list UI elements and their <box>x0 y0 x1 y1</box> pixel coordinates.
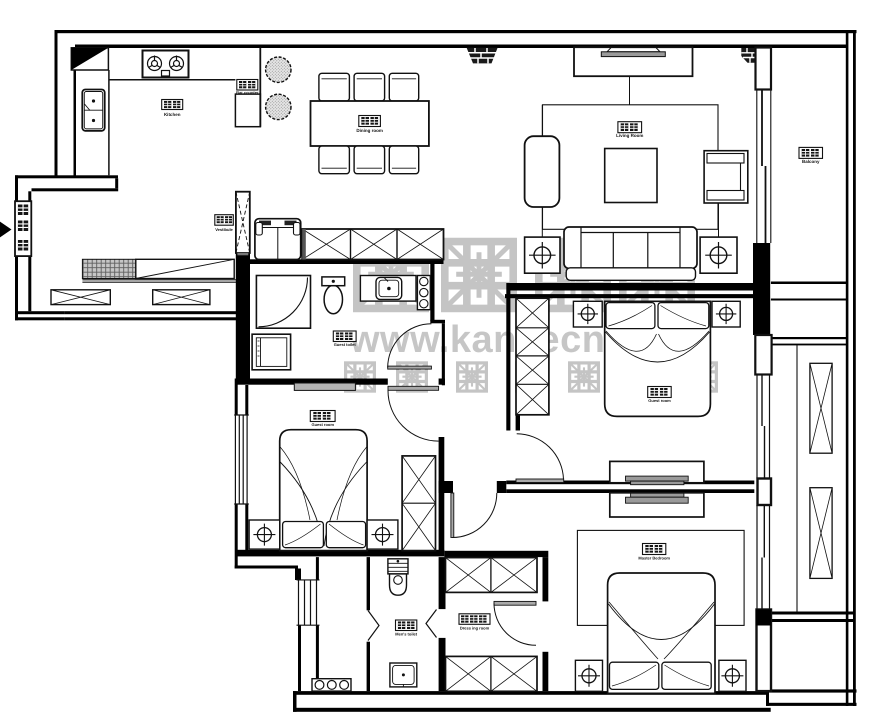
svg-text:Guest room: Guest room <box>648 398 671 403</box>
svg-text:Living Room: Living Room <box>616 133 643 138</box>
svg-text:Guest room: Guest room <box>311 422 334 427</box>
svg-text:Dining room: Dining room <box>356 128 383 133</box>
svg-text:Dress ing room: Dress ing room <box>460 625 490 630</box>
svg-text:Bar counter: Bar counter <box>236 90 259 95</box>
svg-text:Balcony: Balcony <box>802 159 820 164</box>
svg-text:Kitchen: Kitchen <box>164 112 181 117</box>
svg-text:Master Bedroom: Master Bedroom <box>638 556 670 561</box>
svg-text:Men's toilet: Men's toilet <box>395 631 418 636</box>
svg-text:Vestibule: Vestibule <box>215 227 233 232</box>
svg-text:Guest toilet: Guest toilet <box>334 342 357 347</box>
